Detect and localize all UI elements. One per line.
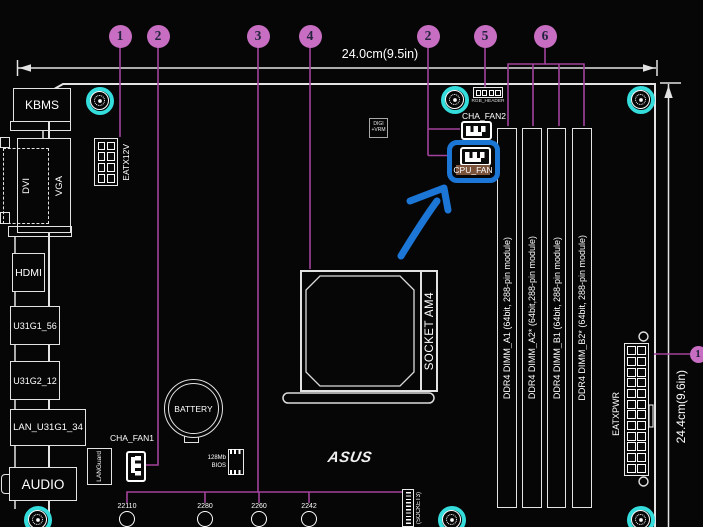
mounting-hole-icon xyxy=(24,506,52,527)
callout-3: 3 xyxy=(247,25,270,48)
board-height-dimension: 24.4cm(9.6in) xyxy=(674,370,688,443)
cha-fan2-header xyxy=(461,121,492,140)
callout-2: 2 xyxy=(147,25,170,48)
mounting-hole-icon xyxy=(86,87,114,115)
cha-fan1-label: CHA_FAN1 xyxy=(106,432,158,443)
callout-5: 5 xyxy=(474,25,497,48)
port-u31g2-12: U31G2_12 xyxy=(10,361,60,400)
eatx12v-label: EATX12V xyxy=(121,144,131,181)
eatxpwr-label: EATXPWR xyxy=(611,392,621,436)
digi-vrm-chip: DIGI +VRM xyxy=(369,118,388,138)
battery: BATTERY xyxy=(164,379,223,438)
port-kbms: KBMS xyxy=(13,88,71,122)
callout-1: 1 xyxy=(109,25,132,48)
eatxpwr-connector xyxy=(624,343,649,476)
motherboard-layout-diagram: 1 2 3 4 2 5 6 1 24.0cm(9.5in) 24.4cm(9.6… xyxy=(0,0,703,527)
port-vga: VGA xyxy=(54,176,65,196)
callout-2b: 2 xyxy=(417,25,440,48)
mounting-hole-icon xyxy=(438,506,466,527)
m2-socket-label: (SOCKET3) xyxy=(416,492,422,524)
cha-fan1-header xyxy=(126,451,146,482)
m2-standoff-22110 xyxy=(119,511,135,527)
m2-standoff-2242-label: 2242 xyxy=(289,502,329,511)
m2-standoff-2242 xyxy=(301,511,317,527)
m2-standoff-2260-label: 2260 xyxy=(239,502,279,511)
asus-logo: ASUS xyxy=(325,449,376,465)
callout-1-right: 1 xyxy=(690,346,703,363)
board-width-dimension: 24.0cm(9.5in) xyxy=(320,46,440,61)
mounting-hole-icon xyxy=(627,86,655,114)
rgb-header xyxy=(473,87,503,98)
cpu-socket-label: SOCKET AM4 xyxy=(424,292,436,370)
port-lan-u31g1-34: LAN_U31G1_34 xyxy=(10,409,86,446)
m2-standoff-22110-label: 22110 xyxy=(107,502,147,511)
dimm-slot-a1: DDR4 DIMM_A1 (64bit, 288-pin module) xyxy=(502,237,512,399)
port-u31g1-56: U31G1_56 xyxy=(10,306,60,345)
callout-6: 6 xyxy=(534,25,557,48)
callout-4: 4 xyxy=(299,25,322,48)
m2-standoff-2260 xyxy=(251,511,267,527)
eatx12v-connector xyxy=(94,138,118,186)
dimm-slot-b2: DDR4 DIMM_B2* (64bit, 288-pin module) xyxy=(577,235,587,401)
m2-standoff-2280 xyxy=(197,511,213,527)
lan-guard-chip: LANGuard xyxy=(96,451,103,482)
port-dvi: DVI xyxy=(21,178,32,194)
dimm-slot-b1: DDR4 DIMM_B1 (64bit, 288-pin module) xyxy=(552,237,562,399)
port-hdmi: HDMI xyxy=(12,253,45,292)
dimm-slot-a2: DDR4 DIMM_A2* (64bit,288-pin module) xyxy=(527,236,537,399)
cpu-socket xyxy=(300,270,438,392)
cpu-fan-highlight-box[interactable] xyxy=(447,140,500,183)
m2-standoff-2280-label: 2280 xyxy=(185,502,225,511)
port-audio: AUDIO xyxy=(9,467,77,501)
bios-label: 128Mb BIOS xyxy=(196,454,226,472)
mounting-hole-icon xyxy=(627,506,655,527)
mounting-hole-icon xyxy=(441,86,469,114)
rgb-header-label: RGB_HEADER xyxy=(470,98,506,104)
bios-chip xyxy=(228,449,244,475)
cha-fan2-label: CHA_FAN2 xyxy=(462,111,506,121)
